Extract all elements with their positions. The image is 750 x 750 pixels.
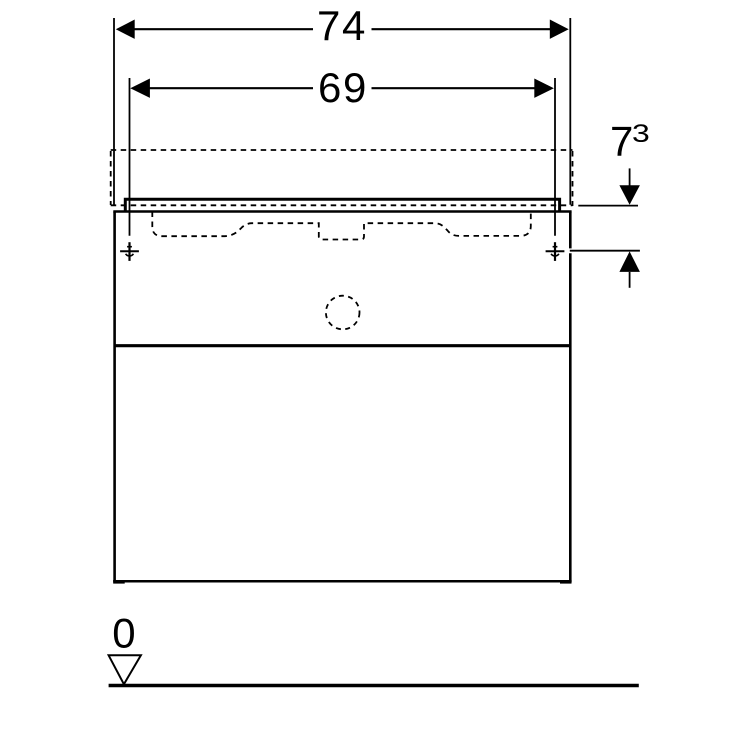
svg-text:7: 7 [610, 118, 633, 165]
svg-text:3: 3 [632, 120, 650, 148]
svg-text:0: 0 [112, 610, 135, 657]
svg-text:74: 74 [317, 2, 367, 49]
svg-text:69: 69 [318, 64, 368, 111]
